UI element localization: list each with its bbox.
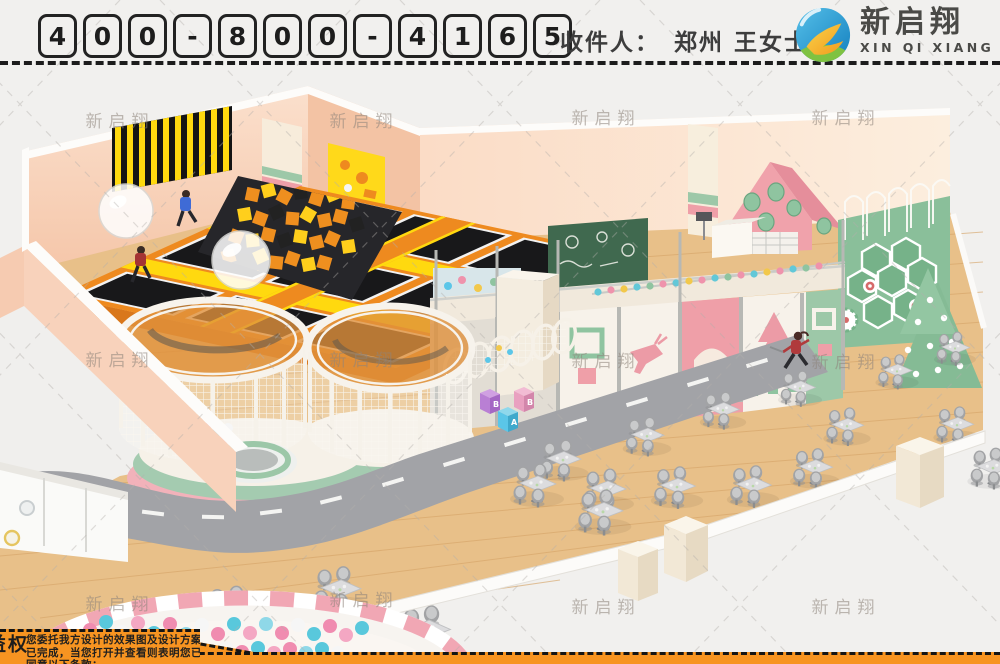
phone-digit: 6 [488, 14, 527, 58]
phone-number: 4 0 0 - 8 0 0 - 4 1 6 5 [38, 14, 572, 58]
disclaimer-text: 您委托我方设计的效果图及设计方案 已完成，当您打开并查看则表明您已经 同意以下条… [26, 632, 200, 664]
svg-text:新启翔: 新启翔 [812, 353, 881, 373]
phone-digit: 0 [128, 14, 167, 58]
phone-digit: - [353, 14, 392, 58]
svg-text:新启翔: 新启翔 [330, 112, 399, 132]
svg-text:新启翔: 新启翔 [86, 351, 155, 371]
bubble-ball [212, 231, 270, 289]
recipient-line: 收件人：郑州 王女士 [560, 23, 809, 57]
svg-text:新启翔: 新启翔 [572, 352, 641, 372]
disclaimer-line: 已完成，当您打开并查看则表明您已经 [26, 647, 200, 660]
porthole-window [5, 531, 19, 545]
phone-digit: 0 [308, 14, 347, 58]
disclaimer-line: 您委托我方设计的效果图及设计方案 [26, 634, 200, 647]
svg-text:B: B [493, 400, 499, 409]
disclaimer-side-label: 权益 [0, 632, 26, 664]
svg-text:新启翔: 新启翔 [86, 595, 155, 615]
bubble-ball [99, 184, 153, 238]
svg-text:新启翔: 新启翔 [812, 598, 881, 618]
phone-digit: - [173, 14, 212, 58]
recipient-label: 收件人： [560, 30, 660, 56]
svg-text:新启翔: 新启翔 [86, 112, 155, 132]
phone-digit: 0 [263, 14, 302, 58]
logo-globe-icon [794, 7, 852, 65]
svg-text:A: A [511, 418, 518, 427]
svg-text:新启翔: 新启翔 [572, 109, 641, 129]
playground-render: B A B [0, 0, 1000, 664]
phone-digit: 8 [218, 14, 257, 58]
phone-digit: 0 [83, 14, 122, 58]
phone-digit: 1 [443, 14, 482, 58]
svg-text:新启翔: 新启翔 [330, 591, 399, 611]
svg-text:B: B [527, 398, 533, 407]
svg-text:新启翔: 新启翔 [330, 351, 399, 371]
svg-text:新启翔: 新启翔 [812, 109, 881, 129]
cream-box [664, 516, 708, 582]
recipient-name: 郑州 王女士 [674, 30, 809, 56]
cream-box [896, 437, 944, 508]
porthole-window [20, 501, 34, 515]
disclaimer-line: 同意以下条款： [26, 659, 200, 664]
phone-digit: 4 [38, 14, 77, 58]
logo-name: 新启翔 [860, 7, 994, 39]
phone-digit: 4 [398, 14, 437, 58]
svg-text:新启翔: 新启翔 [572, 598, 641, 618]
disclaimer-box: 权益 您委托我方设计的效果图及设计方案 已完成，当您打开并查看则表明您已经 同意… [0, 629, 200, 664]
brand-logo: 新启翔 XIN QI XIANG [794, 7, 994, 65]
design-poster: B A B [0, 0, 1000, 664]
logo-subtitle: XIN QI XIANG [860, 40, 994, 55]
cream-box [618, 541, 658, 601]
chalkboard [548, 218, 648, 292]
